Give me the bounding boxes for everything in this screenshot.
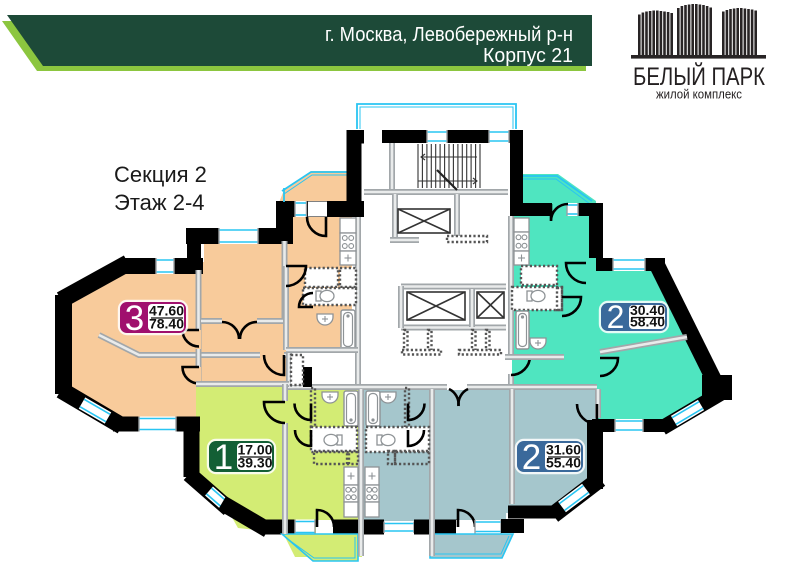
svg-text:Этаж 2-4: Этаж 2-4: [114, 190, 205, 215]
svg-text:78.40: 78.40: [149, 316, 184, 332]
svg-text:2: 2: [607, 299, 625, 335]
svg-text:39.30: 39.30: [237, 455, 272, 471]
svg-text:58.40: 58.40: [630, 314, 665, 330]
svg-text:г. Москва, Левобережный р-н: г. Москва, Левобережный р-н: [325, 24, 573, 46]
svg-text:55.40: 55.40: [546, 455, 581, 471]
svg-text:Секция 2: Секция 2: [114, 162, 207, 187]
svg-text:Корпус 21: Корпус 21: [483, 45, 573, 67]
svg-text:3: 3: [125, 299, 144, 338]
svg-text:2: 2: [522, 438, 541, 477]
svg-text:1: 1: [214, 438, 233, 477]
svg-text:жилой комплекс: жилой комплекс: [656, 87, 742, 102]
